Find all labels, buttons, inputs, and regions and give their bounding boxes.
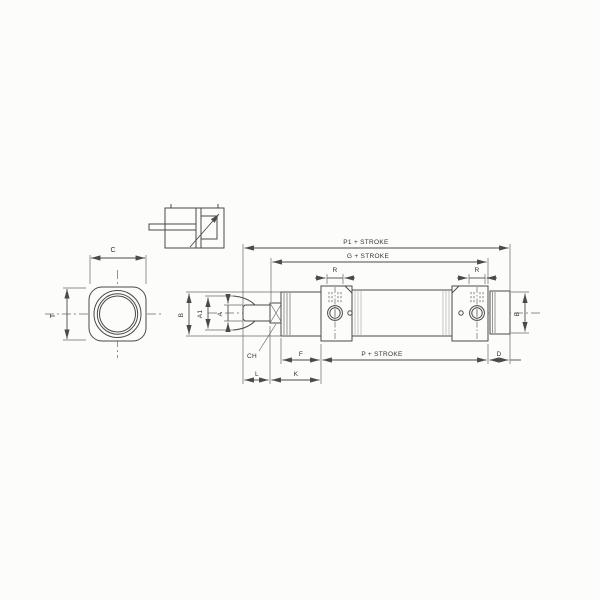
dim-label-a1: A1	[197, 310, 204, 319]
dim-label-r-left: R	[333, 267, 338, 274]
dimension-a1: A1	[197, 298, 208, 329]
dim-label-t: T	[50, 313, 57, 318]
dimension-c: C	[90, 247, 146, 284]
dim-label-d: D	[497, 351, 502, 358]
side-view: P1 + STROKE G + STROKE R R B	[178, 239, 542, 384]
dim-label-a: A	[217, 311, 224, 316]
dim-label-p1-stroke: P1 + STROKE	[343, 239, 389, 246]
dim-label-ch: CH	[247, 353, 257, 360]
cylinder-symbol	[149, 204, 224, 248]
dim-label-c: C	[110, 247, 115, 254]
dim-label-p-stroke: P + STROKE	[361, 351, 403, 358]
dimension-b-left: B	[178, 294, 189, 335]
dimension-k: K	[272, 371, 320, 380]
front-nose	[281, 292, 321, 336]
dim-label-r-right: R	[475, 267, 480, 274]
technical-drawing-canvas: C T	[0, 0, 600, 600]
end-view: C T	[45, 247, 164, 358]
dimension-d: D	[490, 351, 522, 360]
dimension-g-stroke: G + STROKE	[273, 253, 487, 262]
symbol-port-ticks	[171, 204, 218, 208]
dim-label-k: K	[294, 371, 299, 378]
dimension-l: L	[245, 371, 269, 380]
rear-cap	[490, 291, 510, 334]
dimension-f: F	[283, 351, 320, 360]
symbol-piston	[196, 208, 201, 248]
technical-drawing-page: C T	[0, 0, 600, 600]
dim-label-b-left: B	[178, 313, 185, 318]
symbol-rod	[149, 224, 196, 230]
piston-rod	[243, 305, 270, 321]
dimension-p-stroke: P + STROKE	[323, 351, 487, 360]
dimension-p1-stroke: P1 + STROKE	[245, 239, 509, 248]
rod-wrench-flats	[270, 303, 282, 323]
cylinder-tube	[352, 290, 452, 336]
dimension-r-left: R	[315, 267, 355, 284]
dimension-ch: CH	[247, 324, 276, 360]
dim-label-f: F	[299, 351, 303, 358]
dim-label-b-right: B	[514, 312, 521, 317]
dimension-b-right: B	[514, 294, 525, 332]
dim-label-g-stroke: G + STROKE	[347, 253, 390, 260]
dim-label-l: L	[255, 371, 259, 378]
dimension-r-right: R	[457, 267, 497, 284]
